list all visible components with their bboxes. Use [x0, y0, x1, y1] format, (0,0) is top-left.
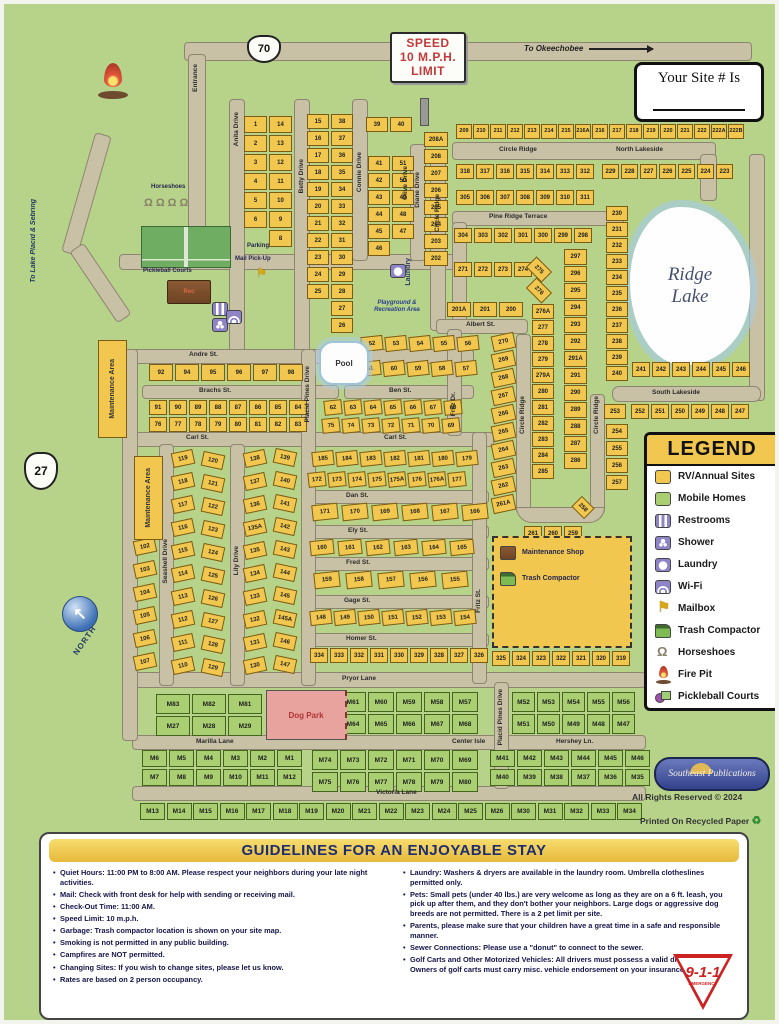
mobile-lot: M83 [156, 694, 190, 714]
lot: 321 [572, 651, 590, 666]
lot: 247 [731, 404, 749, 419]
lot: 172 [307, 471, 326, 488]
mobile-lot: M81 [228, 694, 262, 714]
your-site-label: Your Site # Is [637, 70, 761, 87]
street-hershey: Hershey Ln. [556, 738, 593, 745]
lot: 309 [536, 190, 554, 205]
legend-icon [655, 514, 671, 528]
block-lot-258: 258 [574, 500, 592, 515]
lot: 184 [335, 450, 358, 467]
lot: 167 [431, 503, 459, 522]
street-entrance: Entrance [192, 64, 199, 92]
lot: 65 [383, 399, 402, 416]
lot: 312 [576, 164, 594, 179]
lot: 27 [331, 301, 353, 316]
lot: 104 [133, 583, 158, 602]
lot: 261A [491, 494, 517, 514]
lot: 238 [606, 334, 628, 349]
lot: 39 [366, 117, 388, 132]
lot: 140 [273, 471, 298, 490]
street-circle-ridge: Circle Ridge [499, 146, 537, 153]
lot: 54 [408, 335, 431, 352]
maintenance-shop-icon [500, 546, 516, 560]
lot: 163 [393, 539, 418, 556]
street-carl-e: Carl St. [384, 434, 407, 441]
lot: 69 [441, 417, 460, 434]
mobile-lot: M52 [512, 692, 535, 712]
lot: 300 [534, 228, 552, 243]
mobile-lot: M21 [352, 803, 377, 820]
mobile-lot: M74 [312, 750, 338, 770]
lot: 334 [310, 648, 328, 663]
street-brachs: Brachs St. [199, 387, 231, 394]
lot: 86 [249, 400, 267, 415]
publisher-logo: Southeast Publications [654, 757, 770, 791]
legend-item-label: Wi-Fi [678, 582, 702, 593]
lot: 224 [697, 164, 714, 179]
lot: 255 [606, 441, 628, 456]
legend-icon [655, 536, 671, 550]
lot: 175 [367, 471, 386, 488]
street-andre: Andre St. [189, 351, 218, 358]
mobile-lot: M75 [312, 772, 338, 792]
lot: 310 [556, 190, 574, 205]
lot: 160 [309, 539, 334, 556]
guidelines-panel: GUIDELINES FOR AN ENJOYABLE STAY Quiet H… [39, 832, 749, 1020]
legend-item-label: RV/Annual Sites [678, 472, 755, 483]
route-27-shield: 27 [24, 452, 58, 490]
legend-item-label: Laundry [678, 560, 717, 571]
mobile-lot: M13 [140, 803, 165, 820]
lot: 317 [476, 164, 494, 179]
legend-item: Fire Pit [647, 664, 777, 686]
trash-compactor-icon [500, 572, 516, 586]
lot: 217 [609, 124, 625, 139]
mobile-lot: M26 [485, 803, 510, 820]
mobile-lot: M1 [277, 750, 302, 767]
lot: 295 [564, 283, 587, 299]
lot: 228 [621, 164, 638, 179]
mobile-lot: M41 [490, 750, 515, 767]
lot: 297 [564, 249, 587, 265]
lot: 137 [243, 472, 268, 491]
street-homer: Homer St. [346, 635, 377, 642]
fire-pit-icon [96, 67, 128, 95]
mobile-lot: M50 [537, 714, 560, 734]
lot: 147 [273, 655, 298, 674]
lot: 208 [424, 149, 448, 164]
lot: 158 [345, 571, 373, 590]
lot: 76 [149, 417, 167, 432]
street-diane: Diane Drive [414, 172, 421, 208]
lot: 46 [368, 241, 390, 256]
guideline-bullet: Parents, please make sure that your chil… [403, 921, 735, 940]
lot: 242 [652, 362, 670, 377]
lot: 133 [243, 587, 268, 606]
lot: 12 [269, 154, 292, 171]
mobile-lot: M59 [396, 692, 422, 712]
legend-item-label: Mailbox [678, 604, 715, 615]
mobile-lot: M22 [379, 803, 404, 820]
lot: 81 [249, 417, 267, 432]
block-lot-253: 253 [604, 404, 626, 419]
lot: 161 [337, 539, 362, 556]
legend-item-label: Shower [678, 538, 714, 549]
mailbox-icon: ⚑ [256, 266, 267, 280]
lot: 92 [149, 364, 173, 381]
street-albert: Albert St. [466, 321, 495, 328]
mobile-lot: M45 [598, 750, 623, 767]
lot: 214 [541, 124, 557, 139]
911-text: 9-1-1 [673, 964, 733, 981]
lot: 246 [732, 362, 750, 377]
street-dan: Dan St. [346, 492, 368, 499]
lot: 316 [496, 164, 514, 179]
legend-item: Mobile Homes [647, 488, 777, 510]
legend-icon [655, 624, 671, 638]
lot: 244 [692, 362, 710, 377]
lot: 182 [383, 450, 406, 467]
lot: 48 [392, 207, 414, 222]
guidelines-title: GUIDELINES FOR AN ENJOYABLE STAY [49, 839, 739, 862]
lot: 220 [660, 124, 676, 139]
guideline-bullet: Check-Out Time: 11:00 AM. [53, 902, 385, 912]
lot: 329 [410, 648, 428, 663]
lot: 136 [243, 495, 268, 514]
recycled-text: Printed On Recycled Paper ♻ [640, 814, 761, 827]
lot: 116 [171, 518, 196, 537]
lot: 181 [407, 450, 430, 467]
lot: 113 [171, 587, 196, 606]
lot: 223 [716, 164, 733, 179]
lot: 154 [453, 609, 476, 626]
lot: 179 [455, 450, 478, 467]
lot: 82 [269, 417, 287, 432]
lot: 311 [576, 190, 594, 205]
lot: 145 [273, 586, 298, 605]
lot: 47 [392, 224, 414, 239]
lot: 279A [532, 368, 554, 383]
legend-title: LEGEND [647, 435, 777, 466]
lot: 128 [201, 635, 226, 654]
laundry-label: Laundry [405, 258, 412, 286]
lot: 233 [606, 254, 628, 269]
guideline-bullet: Garbage: Trash compactor location is sho… [53, 926, 385, 936]
parking-label: Parking [247, 243, 269, 250]
block-ben-row2: 75747372717069 [322, 418, 460, 433]
guidelines-left-column: Quiet Hours: 11:00 PM to 8:00 AM. Please… [53, 868, 385, 987]
lot: 64 [363, 399, 382, 416]
lot: 301 [514, 228, 532, 243]
guideline-bullet: Changing Sites: If you wish to change si… [53, 963, 385, 973]
lot: 1 [244, 116, 267, 133]
lot: 165 [449, 539, 474, 556]
block-fred-row: 159158157156155 [314, 572, 468, 588]
lot: 294 [564, 300, 587, 316]
lot: 37 [331, 131, 353, 146]
lot: 21 [307, 216, 329, 231]
lot: 28 [331, 284, 353, 299]
maintenance-shop-label: Maintenance Shop [522, 549, 584, 557]
lot: 291A [564, 351, 587, 367]
street-placid-pines: Placid Pines Drive [304, 366, 311, 422]
lot: 75 [321, 417, 340, 434]
lot: 16 [307, 131, 329, 146]
lot: 241 [632, 362, 650, 377]
street-placid-pines-s: Placid Pines Drive [497, 689, 504, 745]
lot: 296 [564, 266, 587, 282]
mobile-lot: M79 [424, 772, 450, 792]
lot: 201 [473, 302, 497, 317]
lot: 150 [357, 609, 380, 626]
road-east-edge [749, 154, 765, 401]
road-north-lakeside [452, 142, 716, 160]
lot: 292 [564, 334, 587, 350]
okeechobee-arrow-icon [589, 48, 653, 50]
lot: 291 [564, 368, 587, 384]
mobile-lot: M56 [612, 692, 635, 712]
lot: 249 [691, 404, 709, 419]
lot: 138 [243, 449, 268, 468]
lot: 279 [532, 352, 554, 367]
playground-label: Playground & Recreation Area [362, 300, 432, 314]
mobile-lot: M16 [220, 803, 245, 820]
maintenance-area-2: Maintenance Area [134, 456, 163, 540]
lot: 103 [133, 560, 158, 579]
block-north-row: 209210211212213214215216A216217218219220… [456, 124, 744, 139]
street-seashell: Seashell Drive [162, 539, 169, 583]
mobile-lot: M46 [625, 750, 650, 767]
block-ridge-west: 276A277278279279A280281282283284285 [532, 304, 554, 479]
street-fred: Fred St. [346, 559, 370, 566]
lot: 326 [470, 648, 488, 663]
mobile-lot: M25 [458, 803, 483, 820]
lot: 202 [424, 251, 448, 266]
lot: 9 [269, 211, 292, 228]
lot: 26 [331, 318, 353, 333]
lot: 148 [309, 609, 332, 626]
lot: 153 [429, 609, 452, 626]
lot: 53 [384, 335, 407, 352]
mobile-lot: M60 [368, 692, 394, 712]
lot: 40 [390, 117, 412, 132]
lot: 287 [564, 436, 587, 452]
block-seashell-col1: 119118117116115114113112111110 [172, 451, 194, 673]
lot: 43 [368, 190, 390, 205]
lot: 11 [269, 173, 292, 190]
lot: 79 [209, 417, 227, 432]
your-site-box: Your Site # Is [634, 62, 764, 122]
guideline-bullet: Mail: Check with front desk for help wit… [53, 890, 385, 900]
legend-icon [655, 602, 671, 616]
lot: 232 [606, 238, 628, 253]
legend-item-label: Mobile Homes [678, 494, 746, 505]
lot: 250 [671, 404, 689, 419]
guideline-bullet: Laundry: Washers & dryers are available … [403, 868, 735, 887]
block-diag-275: 275276 [528, 262, 550, 298]
lot: 315 [516, 164, 534, 179]
lot: 152 [405, 609, 428, 626]
lot: 314 [536, 164, 554, 179]
block-north-lakeside-row: 229228227226225224223 [602, 164, 733, 179]
lot: 285 [532, 464, 554, 479]
lot: 320 [592, 651, 610, 666]
lot: 299 [554, 228, 572, 243]
lot: 33 [331, 199, 353, 214]
mobile-lot: M38 [544, 769, 569, 786]
lot: 23 [307, 250, 329, 265]
lot: 29 [331, 267, 353, 282]
lot: 70 [421, 417, 440, 434]
to-lake-placid-label: To Lake Placid & Sebring [30, 199, 37, 283]
lot: 280 [532, 384, 554, 399]
block-mobile-n-right: M52M53M54M55M56M51M50M49M48M47 [512, 692, 635, 734]
lot: 253 [604, 404, 626, 419]
guideline-bullet: Campfires are NOT permitted. [53, 950, 385, 960]
lot: 328 [430, 648, 448, 663]
lot: 97 [253, 364, 277, 381]
mobile-lot: M24 [432, 803, 457, 820]
mobile-lot: M47 [612, 714, 635, 734]
road-ely [302, 525, 489, 539]
lot: 257 [606, 475, 628, 490]
lot: 149 [333, 609, 356, 626]
lot: 88 [209, 400, 227, 415]
lot: 66 [403, 399, 422, 416]
guideline-bullet: Sewer Connections: Please use a "donut" … [403, 943, 735, 953]
speed-limit-sign: SPEED10 M.P.H.LIMIT [390, 32, 466, 83]
guideline-bullet: Smoking is not permitted in any public b… [53, 938, 385, 948]
lot: 330 [390, 648, 408, 663]
mobile-lot: M30 [511, 803, 536, 820]
legend-icon [655, 558, 671, 572]
lot: 208A [424, 132, 448, 147]
legend-items: RV/Annual Sites Mobile Homes Restrooms S… [647, 466, 777, 708]
street-ben: Ben St. [389, 387, 411, 394]
lot: 74 [341, 417, 360, 434]
lot: 307 [496, 190, 514, 205]
mobile-lot: M42 [517, 750, 542, 767]
legend-item: Restrooms [647, 510, 777, 532]
lot: 164 [421, 539, 446, 556]
lot: 313 [556, 164, 574, 179]
street-carl-w: Carl St. [186, 434, 209, 441]
lot: 22 [307, 233, 329, 248]
lot: 89 [189, 400, 207, 415]
lot: 31 [331, 233, 353, 248]
lot: 135 [243, 541, 268, 560]
block-mobile-s-left: M6M5M4M3M2M1M7M8M9M10M11M12 [142, 750, 302, 786]
legend-item-label: Restrooms [678, 516, 730, 527]
lot: 209 [456, 124, 472, 139]
lot: 110 [171, 656, 196, 675]
lot: 200 [499, 302, 523, 317]
mobile-lot: M53 [537, 692, 560, 712]
lot: 87 [229, 400, 247, 415]
lot: 234 [606, 270, 628, 285]
block-betty: 1538163717361835193420332132223123302429… [307, 114, 353, 333]
lot: 59 [406, 360, 429, 377]
street-center-isle: Center Isle [452, 738, 485, 745]
lot: 227 [640, 164, 657, 179]
lot: 56 [456, 335, 479, 352]
legend-icon [655, 646, 671, 660]
lot: 298 [574, 228, 592, 243]
lot: 162 [365, 539, 390, 556]
legend-item: Pickleball Courts [647, 686, 777, 708]
lot: 210 [473, 124, 489, 139]
lot: 290 [564, 385, 587, 401]
lot: 35 [331, 165, 353, 180]
lot: 139 [273, 448, 298, 467]
guideline-bullet: Quiet Hours: 11:00 PM to 8:00 AM. Please… [53, 868, 385, 887]
mobile-lot: M11 [250, 769, 275, 786]
mobile-lot: M69 [452, 750, 478, 770]
street-circle-ridge-v: Circle Ridge [434, 194, 441, 232]
lot: 278 [532, 336, 554, 351]
block-albert-row: 201A201200 [447, 302, 523, 317]
lot: 283 [532, 432, 554, 447]
legend-icon [655, 690, 671, 704]
lot: 95 [201, 364, 225, 381]
lot: 222B [728, 124, 744, 139]
rec-hall-icon: Rec [167, 280, 211, 304]
lot: 272 [474, 262, 492, 277]
lot: 236 [606, 302, 628, 317]
block-fritz-diag: 270269268267266265264263262261A [492, 334, 515, 512]
horseshoe-pits-icon: ΩΩΩΩ [144, 197, 191, 209]
lot: 245 [712, 362, 730, 377]
mobile-lot: M32 [564, 803, 589, 820]
lot: 111 [171, 633, 196, 652]
lot: 155 [441, 571, 469, 590]
lot: 286 [564, 453, 587, 469]
lot: 176A [427, 471, 446, 488]
lot: 122 [201, 497, 226, 516]
speed-sign-post [420, 98, 429, 126]
lot: 215 [558, 124, 574, 139]
block-homer-row: 334333332331330329328327326 [310, 648, 488, 663]
block-andre-row: 929495969798 [149, 364, 303, 381]
guideline-bullet: Rates are based on 2 person occupancy. [53, 975, 385, 985]
mobile-lot: M48 [587, 714, 610, 734]
block-ely-row: 160161162163164165 [310, 540, 474, 555]
street-circle-ridge-u2: Circle Ridge [593, 396, 600, 434]
block-lily-col1: 138137136135A135134133132131130 [244, 451, 266, 673]
lot: 201A [447, 302, 471, 317]
mobile-lot: M40 [490, 769, 515, 786]
legend-item: Horseshoes [647, 642, 777, 664]
lot: 170 [341, 503, 369, 522]
lot: 282 [532, 416, 554, 431]
lot: 60 [382, 360, 405, 377]
street-connie: Connie Drive [356, 152, 363, 192]
road-fred [302, 557, 489, 571]
lot: 276A [532, 304, 554, 319]
lot: 185 [311, 450, 334, 467]
block-pool-row1: 5253545556 [361, 336, 479, 351]
lot: 62 [323, 399, 342, 416]
lot: 2 [244, 135, 267, 152]
lot: 126 [201, 589, 226, 608]
lot: 146 [273, 632, 298, 651]
lot: 118 [171, 472, 196, 491]
lot: 131 [243, 633, 268, 652]
to-okeechobee: To Okeechobee [524, 44, 653, 53]
lot: 19 [307, 182, 329, 197]
lot: 318 [456, 164, 474, 179]
street-ely: Ely St. [348, 527, 368, 534]
